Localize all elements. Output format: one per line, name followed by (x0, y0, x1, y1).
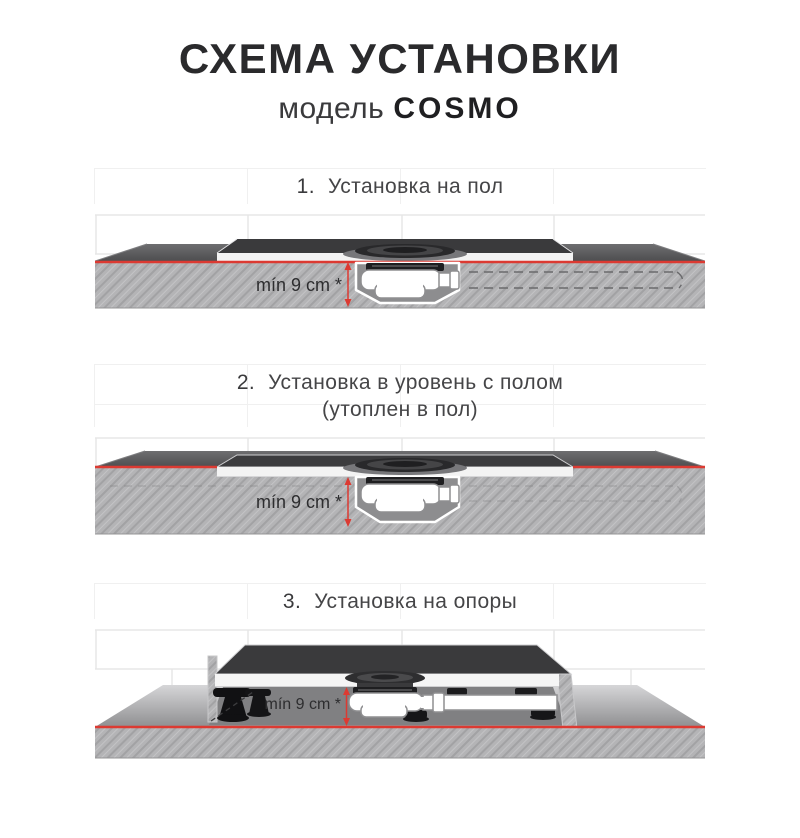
section-install-on-floor: 1.Установка на пол (0, 168, 800, 318)
section-2-heading: 2.Установка в уровень с полом (утоплен в… (94, 364, 706, 427)
section-2-subtitle: (утоплен в пол) (94, 397, 706, 423)
dimension-label: mín 9 cm * (256, 275, 342, 295)
installation-scheme-page: СХЕМА УСТАНОВКИ модельCOSMO 1.Установка … (0, 38, 800, 838)
section-3-number: 3. (283, 590, 301, 613)
model-subtitle: модельCOSMO (0, 94, 800, 124)
model-name: COSMO (393, 92, 521, 125)
section-1-heading: 1.Установка на пол (94, 168, 706, 204)
section-1-title: Установка на пол (328, 175, 503, 198)
dimension-label: mín 9 cm * (265, 696, 341, 713)
diagram-install-flush: mín 9 cm * (95, 437, 705, 541)
diagram-install-on-floor: mín 9 cm * (95, 214, 705, 318)
model-label: модель (278, 92, 384, 125)
section-install-flush: 2.Установка в уровень с полом (утоплен в… (0, 364, 800, 541)
section-2-number: 2. (237, 371, 255, 394)
page-title: СХЕМА УСТАНОВКИ (0, 38, 800, 80)
section-2-title: Установка в уровень с полом (268, 371, 563, 394)
section-install-on-supports: 3.Установка на опоры (0, 583, 800, 763)
section-1-number: 1. (297, 175, 315, 198)
section-3-heading: 3.Установка на опоры (94, 583, 706, 619)
drain-grate (345, 671, 425, 687)
dimension-label: mín 9 cm * (256, 492, 342, 512)
section-3-title: Установка на опоры (314, 590, 517, 613)
diagram-install-on-supports: mín 9 cm * (95, 629, 705, 763)
